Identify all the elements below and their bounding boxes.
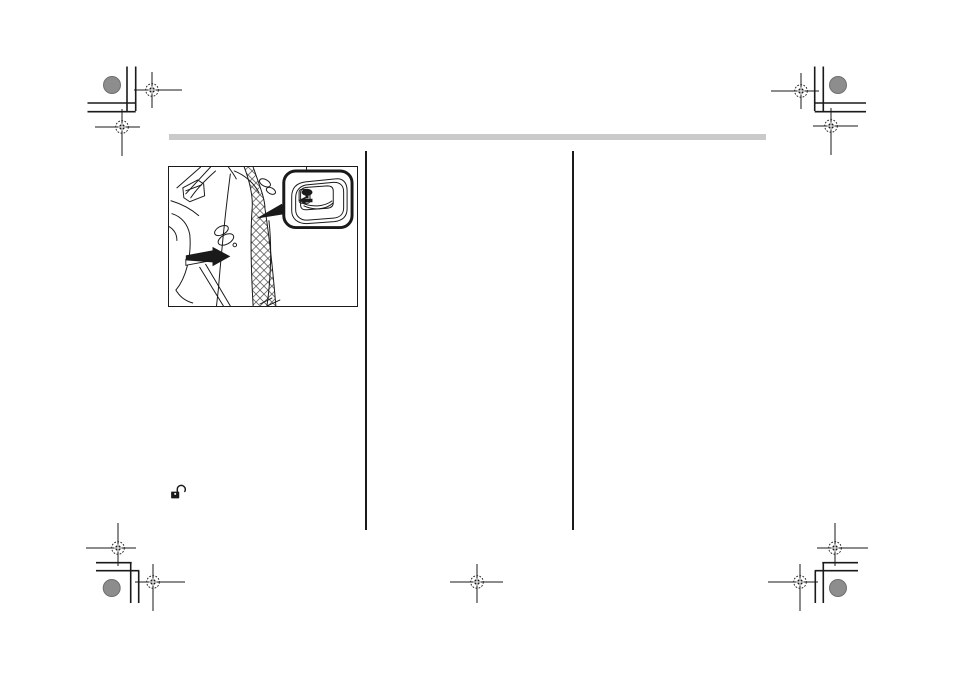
granite-dot	[104, 77, 121, 94]
door-lock-figure	[168, 166, 358, 307]
granite-dot	[830, 77, 847, 94]
crosshair-icon	[817, 530, 853, 566]
crosshair-icon	[782, 564, 818, 600]
crosshair-icon	[134, 72, 170, 108]
car-door-illustration	[169, 167, 357, 306]
manual-page	[0, 0, 954, 674]
unlock-icon	[170, 482, 188, 500]
crosshair-icon	[100, 530, 136, 566]
crosshair-icon	[813, 108, 849, 144]
granite-dot	[103, 580, 120, 597]
print-marks-layer	[0, 0, 954, 674]
registration-mark-bottom-right	[768, 523, 868, 611]
handle-callout-balloon	[284, 171, 352, 228]
header-rule	[169, 134, 766, 140]
registration-mark-top-right	[771, 67, 866, 156]
registration-mark-bottom-left	[86, 523, 185, 611]
crosshair-icon	[783, 73, 819, 109]
crosshair-icon	[459, 564, 495, 600]
column-divider-right	[572, 151, 574, 530]
column-divider-left	[365, 151, 367, 530]
crosshair-icon	[135, 564, 171, 600]
granite-dot	[830, 580, 847, 597]
crosshair-icon	[104, 109, 140, 145]
registration-mark-top-left	[88, 67, 183, 157]
door-arrow	[186, 247, 231, 266]
registration-mark-bottom-center	[450, 564, 503, 603]
